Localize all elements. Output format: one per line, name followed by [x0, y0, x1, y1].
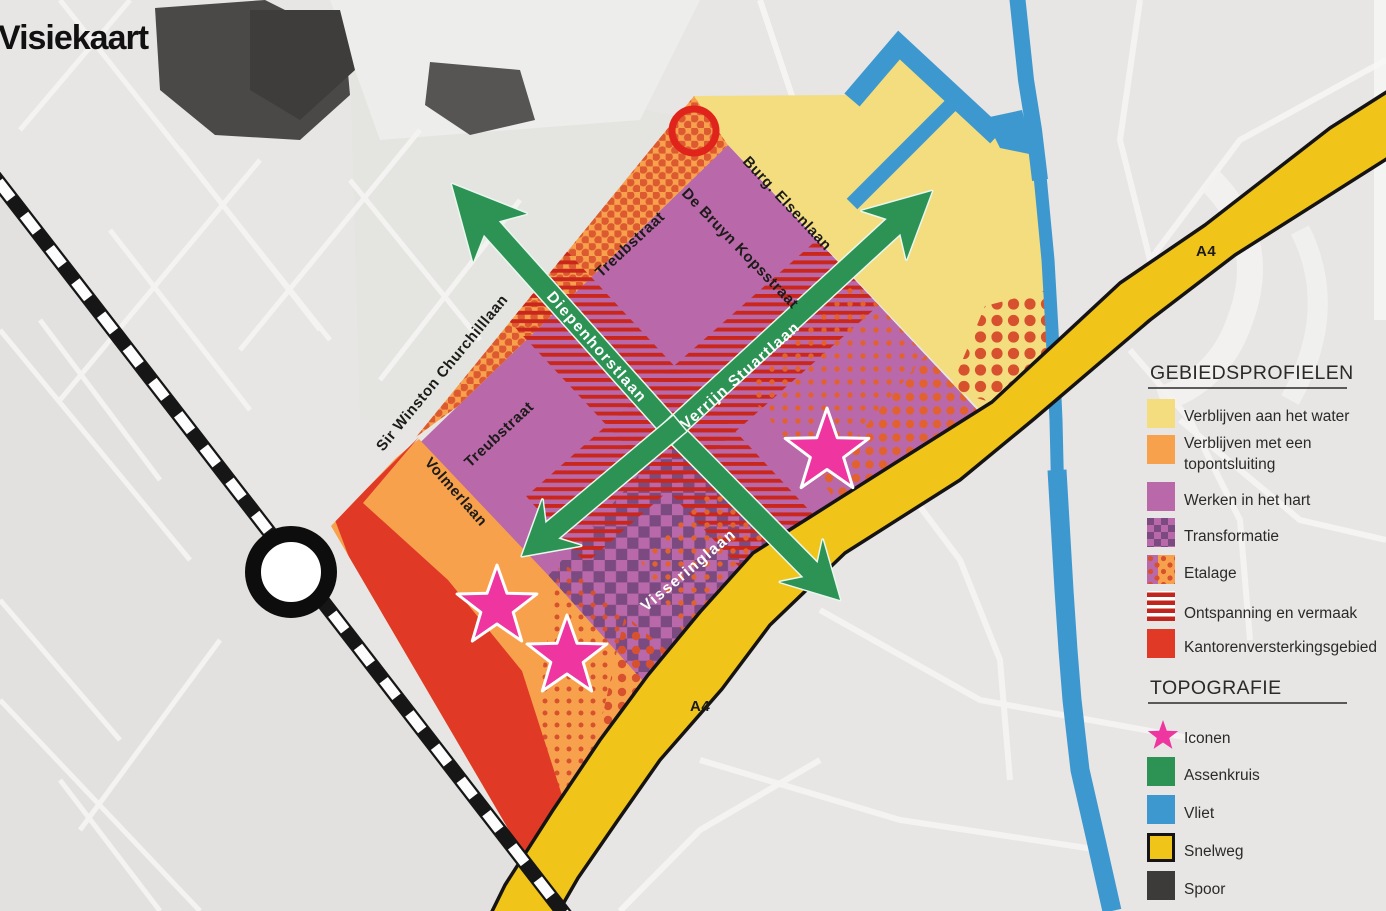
svg-text:Verblijven met een: Verblijven met een: [1184, 435, 1312, 452]
svg-text:Visiekaart: Visiekaart: [0, 19, 149, 57]
svg-text:topontsluiting: topontsluiting: [1184, 456, 1275, 473]
svg-text:Ontspanning en vermaak: Ontspanning en vermaak: [1184, 605, 1357, 622]
svg-text:Werken in het hart: Werken in het hart: [1184, 492, 1311, 509]
svg-text:TOPOGRAFIE: TOPOGRAFIE: [1150, 677, 1282, 699]
svg-text:Verblijven aan het water: Verblijven aan het water: [1184, 408, 1349, 425]
svg-text:Iconen: Iconen: [1184, 730, 1231, 747]
svg-text:A4: A4: [690, 698, 710, 715]
svg-text:Assenkruis: Assenkruis: [1184, 767, 1260, 784]
svg-text:Transformatie: Transformatie: [1184, 528, 1279, 545]
svg-text:Kantorenversterkingsgebied: Kantorenversterkingsgebied: [1184, 639, 1377, 656]
svg-text:GEBIEDSPROFIELEN: GEBIEDSPROFIELEN: [1150, 362, 1354, 384]
svg-text:Snelweg: Snelweg: [1184, 843, 1243, 860]
svg-text:Spoor: Spoor: [1184, 881, 1225, 898]
svg-text:Vliet: Vliet: [1184, 805, 1215, 822]
svg-text:Etalage: Etalage: [1184, 565, 1237, 582]
svg-text:A4: A4: [1196, 243, 1216, 260]
